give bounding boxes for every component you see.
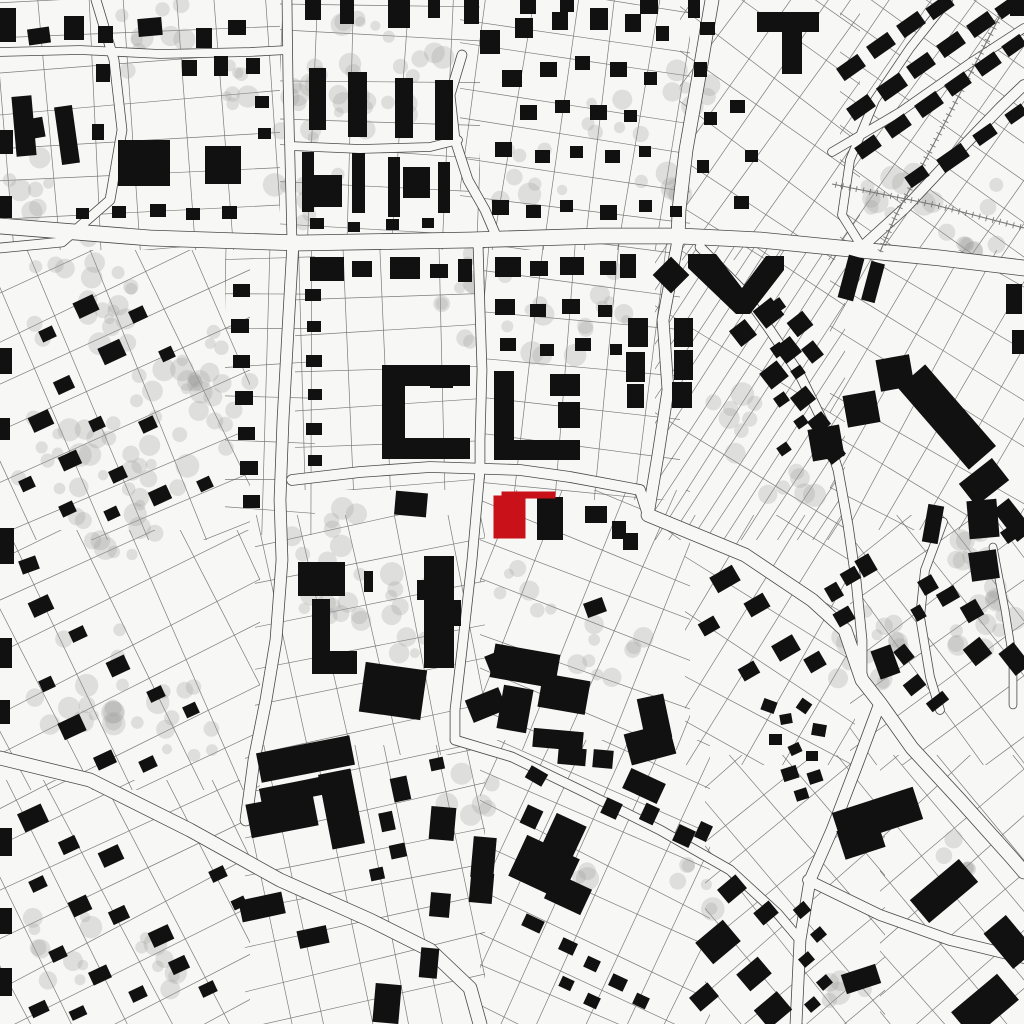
building-footprint (585, 506, 607, 523)
building-footprint (674, 350, 693, 380)
building-footprint (359, 662, 427, 720)
building-footprint (540, 62, 557, 77)
tree-canopy-icon (484, 776, 500, 792)
tree-canopy-icon (52, 429, 63, 440)
building-footprint (540, 344, 554, 356)
tree-canopy-icon (389, 643, 409, 663)
building-footprint (240, 461, 258, 475)
tree-canopy-icon (557, 185, 567, 195)
building-footprint (233, 355, 250, 368)
building-footprint (372, 983, 401, 1024)
building-footprint (745, 150, 758, 162)
tree-canopy-icon (506, 169, 523, 186)
building-footprint (214, 56, 228, 76)
building-footprint (364, 571, 373, 592)
building-footprint (562, 299, 580, 314)
tree-canopy-icon (944, 830, 962, 848)
building-footprint (306, 355, 322, 367)
building-footprint (697, 160, 709, 173)
building-footprint (520, 0, 536, 14)
building-footprint (302, 152, 314, 212)
building-footprint (196, 28, 212, 48)
tree-canopy-icon (176, 454, 200, 478)
tree-canopy-icon (142, 381, 163, 402)
building-footprint (550, 374, 580, 396)
building-footprint (644, 72, 657, 85)
building-footprint (782, 12, 802, 74)
tree-canopy-icon (108, 546, 121, 559)
building-footprint (310, 257, 344, 281)
building-footprint (656, 26, 669, 41)
tree-canopy-icon (135, 941, 148, 954)
building-footprint (98, 26, 113, 43)
building-footprint (600, 205, 617, 220)
tree-canopy-icon (989, 178, 1003, 192)
building-footprint (1010, 0, 1024, 16)
tree-canopy-icon (591, 669, 603, 681)
building-footprint (308, 455, 322, 466)
tree-canopy-icon (602, 668, 621, 687)
building-footprint (968, 549, 1000, 582)
building-footprint (537, 497, 563, 540)
tree-canopy-icon (214, 340, 229, 355)
tree-canopy-icon (112, 266, 125, 279)
tree-canopy-icon (177, 355, 188, 366)
tree-canopy-icon (162, 744, 172, 754)
tree-canopy-icon (790, 468, 810, 488)
building-footprint (395, 78, 413, 138)
building-footprint (502, 70, 522, 87)
tree-canopy-icon (454, 282, 465, 293)
building-footprint (182, 60, 197, 76)
building-footprint (842, 390, 880, 427)
building-footprint (494, 371, 514, 460)
tree-canopy-icon (329, 85, 349, 105)
tree-canopy-icon (152, 961, 164, 973)
building-footprint (806, 751, 818, 761)
building-footprint (515, 18, 533, 38)
building-footprint (231, 319, 249, 333)
building-footprint (624, 110, 637, 122)
tree-canopy-icon (40, 714, 61, 735)
tree-canopy-icon (936, 847, 953, 864)
building-footprint (310, 218, 324, 229)
tree-canopy-icon (980, 199, 997, 216)
tree-canopy-icon (123, 279, 138, 294)
building-footprint (0, 418, 10, 440)
tree-canopy-icon (612, 90, 632, 110)
tree-canopy-icon (776, 480, 790, 494)
tree-canopy-icon (938, 224, 955, 241)
building-footprint (186, 208, 200, 220)
tree-canopy-icon (436, 298, 448, 310)
building-footprint (674, 318, 693, 347)
tree-canopy-icon (23, 908, 43, 928)
tree-canopy-icon (75, 674, 98, 697)
building-footprint (26, 117, 45, 139)
building-footprint (575, 338, 591, 351)
building-footprint (348, 222, 360, 232)
tree-canopy-icon (988, 236, 1006, 254)
building-footprint (626, 352, 645, 382)
tree-canopy-icon (682, 859, 695, 872)
tree-canopy-icon (626, 639, 641, 654)
tree-canopy-icon (187, 375, 203, 391)
building-footprint (514, 440, 580, 460)
building-footprint (530, 261, 548, 276)
building-footprint (552, 12, 568, 30)
tree-canopy-icon (334, 107, 344, 117)
tree-canopy-icon (241, 373, 258, 390)
building-footprint (694, 62, 707, 77)
building-footprint (258, 128, 271, 139)
tree-canopy-icon (588, 634, 600, 646)
tree-canopy-icon (479, 800, 496, 817)
tree-canopy-icon (98, 470, 108, 480)
tree-canopy-icon (460, 804, 481, 825)
tree-canopy-icon (330, 535, 352, 557)
building-footprint (309, 68, 326, 130)
tree-canopy-icon (299, 603, 310, 614)
building-footprint (0, 828, 12, 856)
tree-canopy-icon (494, 587, 507, 600)
building-footprint (620, 254, 636, 278)
tree-canopy-icon (84, 532, 101, 549)
building-footprint (238, 427, 255, 440)
building-footprint (312, 599, 330, 652)
building-footprint (306, 423, 322, 435)
building-footprint (429, 892, 451, 918)
building-footprint (386, 219, 399, 230)
tree-canopy-icon (21, 201, 42, 222)
tree-canopy-icon (146, 459, 157, 470)
tree-canopy-icon (81, 267, 103, 289)
building-footprint (0, 8, 16, 42)
tree-canopy-icon (135, 500, 146, 511)
tree-canopy-icon (232, 67, 243, 78)
building-footprint (382, 365, 405, 459)
building-footprint (557, 747, 586, 766)
building-footprint (453, 600, 461, 626)
building-footprint (575, 56, 590, 70)
building-footprint (429, 806, 457, 841)
tree-canopy-icon (225, 86, 240, 101)
tree-canopy-icon (701, 897, 725, 921)
tree-canopy-icon (54, 483, 66, 495)
building-footprint (312, 651, 357, 674)
tree-canopy-icon (41, 454, 55, 468)
tree-canopy-icon (188, 749, 201, 762)
building-footprint (64, 16, 84, 40)
building-footprint (640, 0, 658, 14)
tree-canopy-icon (132, 368, 147, 383)
tree-canopy-icon (584, 615, 603, 634)
building-footprint (313, 175, 342, 207)
tree-canopy-icon (501, 320, 513, 332)
building-footprint (610, 344, 622, 355)
building-footprint (348, 72, 367, 137)
tree-canopy-icon (75, 512, 92, 529)
building-footprint (625, 14, 641, 32)
tree-canopy-icon (102, 318, 120, 336)
tree-canopy-icon (43, 178, 54, 189)
tree-canopy-icon (206, 412, 223, 429)
building-footprint (307, 321, 321, 332)
building-footprint (610, 62, 627, 77)
building-footprint (394, 491, 428, 518)
tree-canopy-icon (577, 318, 593, 334)
building-footprint (222, 206, 237, 219)
building-footprint (388, 0, 410, 28)
tree-canopy-icon (218, 440, 234, 456)
road (287, 0, 292, 243)
tree-canopy-icon (139, 435, 160, 456)
building-footprint (639, 200, 652, 212)
building-footprint (388, 157, 400, 217)
building-footprint (76, 208, 89, 219)
tree-canopy-icon (518, 183, 541, 206)
tree-canopy-icon (391, 598, 408, 615)
tree-canopy-icon (567, 654, 587, 674)
building-footprint (340, 0, 354, 24)
building-footprint (627, 384, 644, 408)
road (0, 50, 287, 54)
building-footprint (424, 556, 454, 668)
tree-canopy-icon (633, 126, 649, 142)
tree-canopy-icon (666, 59, 688, 81)
building-footprint (150, 204, 166, 217)
building-footprint (428, 0, 440, 18)
building-footprint (243, 495, 260, 508)
tree-canopy-icon (155, 2, 169, 16)
building-footprint (464, 0, 479, 24)
tree-canopy-icon (410, 648, 420, 658)
tree-canopy-icon (614, 122, 625, 133)
building-footprint (700, 22, 715, 35)
building-footprint (352, 261, 372, 277)
building-footprint (555, 100, 570, 113)
tree-canopy-icon (295, 547, 310, 562)
tree-canopy-icon (545, 603, 556, 614)
tree-canopy-icon (169, 479, 186, 496)
tree-canopy-icon (26, 688, 44, 706)
tree-canopy-icon (956, 236, 971, 251)
building-footprint (0, 968, 12, 996)
tree-canopy-icon (115, 9, 128, 22)
tree-canopy-icon (47, 257, 63, 273)
building-footprint (469, 872, 495, 904)
tree-canopy-icon (113, 623, 126, 636)
tree-canopy-icon (126, 549, 137, 560)
building-footprint (670, 206, 682, 217)
building-footprint (1006, 284, 1022, 314)
building-footprint (352, 153, 365, 213)
building-footprint (430, 370, 453, 388)
building-footprint (560, 200, 573, 212)
tree-canopy-icon (75, 974, 86, 985)
tree-canopy-icon (705, 394, 721, 410)
building-footprint (0, 196, 12, 218)
building-footprint (480, 30, 500, 54)
tree-canopy-icon (663, 82, 682, 101)
building-footprint (688, 0, 700, 18)
tree-canopy-icon (701, 879, 712, 890)
tree-canopy-icon (146, 525, 163, 542)
building-footprint (235, 391, 253, 405)
tree-canopy-icon (160, 26, 180, 46)
building-footprint (228, 20, 246, 35)
tree-canopy-icon (950, 624, 963, 637)
building-footprint (558, 402, 580, 428)
building-footprint (137, 17, 162, 37)
building-footprint (298, 562, 345, 596)
tree-canopy-icon (30, 939, 47, 956)
building-footprint (495, 142, 512, 157)
tree-canopy-icon (213, 374, 232, 393)
tree-canopy-icon (880, 166, 904, 190)
map-viewport[interactable] (0, 0, 1024, 1024)
building-footprint (0, 130, 13, 154)
tree-canopy-icon (27, 316, 43, 332)
tree-canopy-icon (509, 560, 526, 577)
building-footprint (233, 284, 250, 297)
tree-canopy-icon (176, 682, 193, 699)
tree-canopy-icon (742, 412, 757, 427)
building-footprint (458, 259, 472, 282)
tree-canopy-icon (36, 441, 48, 453)
building-footprint (246, 58, 260, 74)
building-footprint (495, 257, 521, 277)
road (478, 243, 482, 470)
building-footprint (419, 947, 440, 978)
building-footprint (417, 580, 425, 600)
tree-canopy-icon (78, 960, 89, 971)
building-footprint (639, 146, 651, 157)
building-footprint (255, 96, 269, 108)
building-footprint (0, 528, 14, 564)
building-footprint (495, 299, 515, 315)
tree-canopy-icon (456, 329, 473, 346)
building-footprint (730, 100, 745, 113)
building-footprint (672, 382, 692, 408)
building-footprint (590, 8, 608, 30)
tree-canopy-icon (346, 503, 367, 524)
tree-canopy-icon (872, 629, 883, 640)
building-footprint (560, 257, 584, 275)
tree-canopy-icon (370, 21, 380, 31)
building-footprint (598, 305, 612, 317)
building-footprint (422, 218, 434, 228)
building-footprint (305, 0, 321, 20)
tree-canopy-icon (381, 96, 395, 110)
building-footprint (492, 200, 509, 215)
tree-canopy-icon (80, 916, 102, 938)
building-footprint (118, 140, 170, 186)
tree-canopy-icon (885, 615, 903, 633)
tree-canopy-icon (205, 338, 216, 349)
building-footprint (570, 146, 583, 158)
building-footprint (0, 908, 12, 934)
tree-canopy-icon (451, 763, 473, 785)
building-footprint (92, 124, 104, 140)
tree-canopy-icon (635, 175, 648, 188)
building-footprint (526, 205, 541, 218)
building-footprint (769, 734, 782, 745)
tree-canopy-icon (106, 416, 120, 430)
tree-canopy-icon (29, 260, 42, 273)
city-map-canvas[interactable] (0, 0, 1024, 1024)
building-footprint (403, 167, 430, 198)
building-footprint (560, 0, 574, 12)
tree-canopy-icon (69, 478, 89, 498)
tree-canopy-icon (132, 458, 148, 474)
tree-canopy-icon (131, 716, 144, 729)
tree-canopy-icon (116, 679, 129, 692)
building-footprint (0, 348, 12, 374)
building-footprint (605, 150, 620, 163)
tree-canopy-icon (411, 50, 428, 67)
tree-canopy-icon (725, 443, 746, 464)
tree-canopy-icon (828, 668, 848, 688)
building-footprint (623, 533, 638, 550)
building-footprint (430, 264, 448, 278)
building-footprint (530, 304, 546, 317)
tree-canopy-icon (758, 485, 777, 504)
tree-canopy-icon (204, 721, 220, 737)
building-footprint (0, 638, 12, 668)
building-footprint (308, 389, 322, 400)
tree-canopy-icon (588, 125, 603, 140)
tree-canopy-icon (156, 720, 175, 739)
building-footprint (628, 318, 648, 347)
tree-canopy-icon (28, 182, 43, 197)
building-footprint (811, 723, 827, 737)
building-footprint (0, 700, 10, 724)
tree-canopy-icon (393, 59, 408, 74)
tree-canopy-icon (387, 581, 403, 597)
tree-canopy-icon (207, 325, 221, 339)
tree-canopy-icon (206, 744, 218, 756)
building-footprint (535, 150, 550, 163)
tree-canopy-icon (130, 394, 143, 407)
building-footprint (96, 64, 110, 82)
building-footprint (592, 749, 613, 769)
building-footprint (590, 105, 607, 120)
tree-canopy-icon (513, 149, 527, 163)
building-footprint (734, 196, 749, 209)
tree-canopy-icon (719, 408, 740, 429)
building-footprint (600, 261, 616, 275)
tree-canopy-icon (120, 62, 136, 78)
building-footprint (205, 146, 241, 184)
tree-canopy-icon (669, 873, 686, 890)
tree-canopy-icon (383, 31, 395, 43)
building-footprint (435, 80, 453, 140)
tree-canopy-icon (530, 603, 545, 618)
tree-canopy-icon (189, 401, 209, 421)
building-footprint (112, 206, 126, 218)
tree-canopy-icon (39, 971, 57, 989)
tree-canopy-icon (519, 581, 539, 601)
building-footprint (704, 112, 717, 125)
building-footprint (520, 105, 537, 120)
building-footprint (438, 162, 450, 213)
tree-canopy-icon (172, 427, 187, 442)
building-footprint (390, 257, 420, 279)
building-footprint (27, 27, 51, 46)
building-footprint (305, 289, 321, 301)
building-footprint (1012, 330, 1024, 354)
